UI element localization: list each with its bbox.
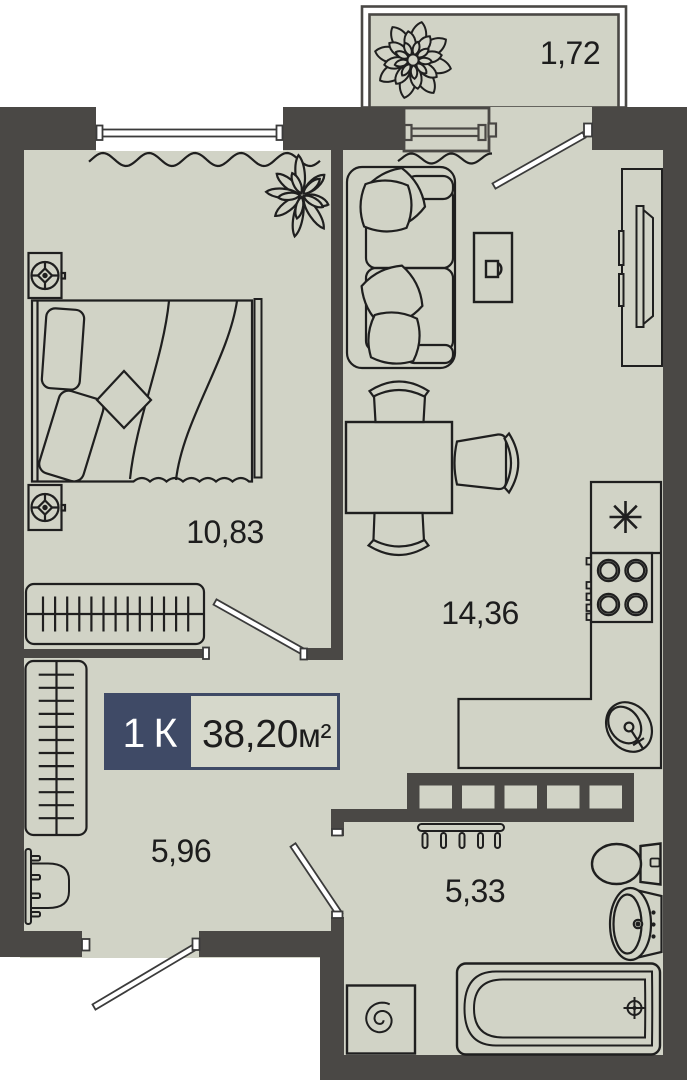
svg-text:1 К: 1 К xyxy=(123,710,178,756)
svg-text:1,72: 1,72 xyxy=(540,35,600,71)
svg-text:38,20м²: 38,20м² xyxy=(202,713,331,756)
svg-text:10,83: 10,83 xyxy=(186,514,264,550)
svg-text:5,33: 5,33 xyxy=(445,873,505,909)
svg-text:5,96: 5,96 xyxy=(151,833,211,869)
svg-text:14,36: 14,36 xyxy=(441,595,519,631)
